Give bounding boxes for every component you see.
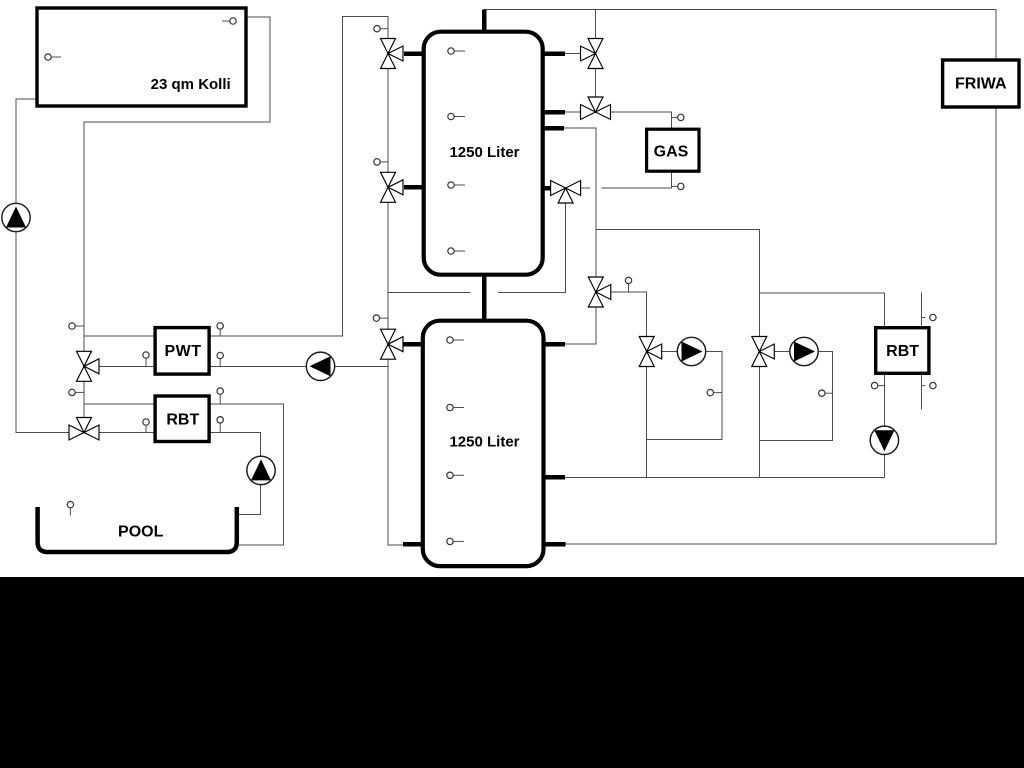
svg-text:23 qm Kolli: 23 qm Kolli [151,76,231,93]
svg-text:1250 Liter: 1250 Liter [449,434,519,451]
svg-text:RBT: RBT [886,343,919,360]
svg-text:POOL: POOL [118,523,164,540]
svg-text:GAS: GAS [654,144,689,161]
svg-text:1250 Liter: 1250 Liter [449,144,519,161]
svg-text:RBT: RBT [166,411,199,428]
svg-text:FRIWA: FRIWA [955,76,1007,93]
svg-text:PWT: PWT [164,343,201,360]
